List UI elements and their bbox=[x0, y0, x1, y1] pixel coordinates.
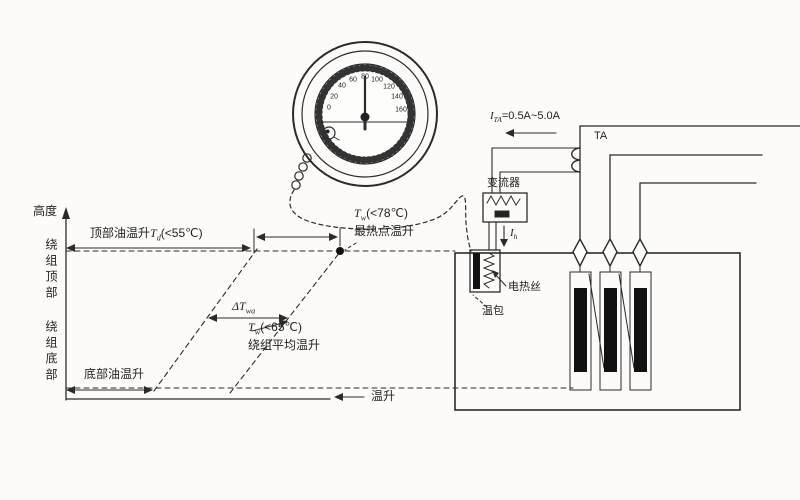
hotspot-rise-label: Tw(<78℃) 最热点温升 bbox=[354, 206, 414, 239]
ta-current-arrowhead bbox=[505, 129, 514, 137]
capillary-bead bbox=[299, 163, 307, 171]
gauge-scale-100: 100 bbox=[371, 77, 383, 84]
converter-resistor-zigzag bbox=[487, 196, 520, 205]
winding-bar-3 bbox=[634, 288, 647, 372]
oil-temperature-line bbox=[154, 249, 257, 391]
gauge-scale-160: 160 bbox=[395, 107, 407, 114]
ta-label: TA bbox=[594, 130, 607, 144]
converter-terminal-block bbox=[495, 211, 509, 217]
winding-top-axis-label: 绕组顶部 bbox=[43, 238, 58, 302]
temperature-bulb-label: 温包 bbox=[482, 305, 504, 319]
ta-current-label: ITA=0.5A~5.0A bbox=[490, 110, 560, 125]
winding-bar-1 bbox=[574, 288, 587, 372]
temp-rise-axis-label: 温升 bbox=[371, 389, 395, 404]
gauge-scale-20: 20 bbox=[330, 94, 338, 101]
gauge-scale-60: 60 bbox=[349, 77, 357, 84]
height-axis-arrowhead bbox=[62, 207, 70, 219]
bushing-2 bbox=[603, 239, 617, 266]
current-transformer-coil bbox=[572, 148, 580, 172]
gauge-needle-hub bbox=[361, 113, 370, 122]
phase-line-2 bbox=[610, 155, 762, 239]
bottom-oil-rise-label: 底部油温升 bbox=[84, 367, 144, 382]
bulb-bar bbox=[473, 253, 480, 289]
transformer-temperature-diagram: 高度 绕组顶部 绕组底部 顶部油温升Td(<55℃) Tw(<78℃) 最热点温… bbox=[0, 0, 800, 500]
temp-axis-arrowhead bbox=[334, 393, 343, 401]
bushing-3 bbox=[633, 239, 647, 266]
gauge-adjust-screw-dot bbox=[326, 130, 330, 134]
top-oil-rise-label: 顶部油温升Td(<55℃) bbox=[90, 226, 203, 244]
bottom-oil-arrowhead-left bbox=[66, 386, 75, 394]
heater-wire-label: 电热丝 bbox=[508, 281, 541, 295]
gauge-scale-120: 120 bbox=[383, 84, 395, 91]
winding-bottom-axis-label: 绕组底部 bbox=[43, 320, 58, 384]
diagram-canvas bbox=[0, 0, 800, 500]
height-axis-label: 高度 bbox=[33, 204, 57, 219]
phase-line-3 bbox=[640, 183, 756, 239]
converter-box bbox=[483, 193, 527, 222]
capillary-bead bbox=[292, 181, 300, 189]
hotspot-point bbox=[336, 247, 344, 255]
heater-current-arrowhead bbox=[500, 239, 508, 247]
bottom-oil-arrowhead-right bbox=[144, 386, 153, 394]
winding-average-rise-label: Tw(<65℃) 绕组平均温升 bbox=[248, 320, 320, 353]
gauge-scale-80: 80 bbox=[361, 74, 369, 81]
delta-twa-label: ΔTwa bbox=[232, 299, 255, 317]
hotspot-arrowhead-left bbox=[256, 233, 265, 241]
winding-bar-2 bbox=[604, 288, 617, 372]
hotspot-label-pointer bbox=[345, 243, 356, 250]
heater-current-label: Ih bbox=[510, 227, 517, 242]
gauge-scale-40: 40 bbox=[338, 83, 346, 90]
bushing-1 bbox=[573, 239, 587, 266]
gauge-scale-140: 140 bbox=[391, 94, 403, 101]
capillary-bead bbox=[295, 172, 303, 180]
converter-label: 变流器 bbox=[487, 177, 520, 191]
hotspot-arrowhead-right bbox=[329, 233, 338, 241]
gauge-scale-0: 0 bbox=[327, 105, 331, 112]
